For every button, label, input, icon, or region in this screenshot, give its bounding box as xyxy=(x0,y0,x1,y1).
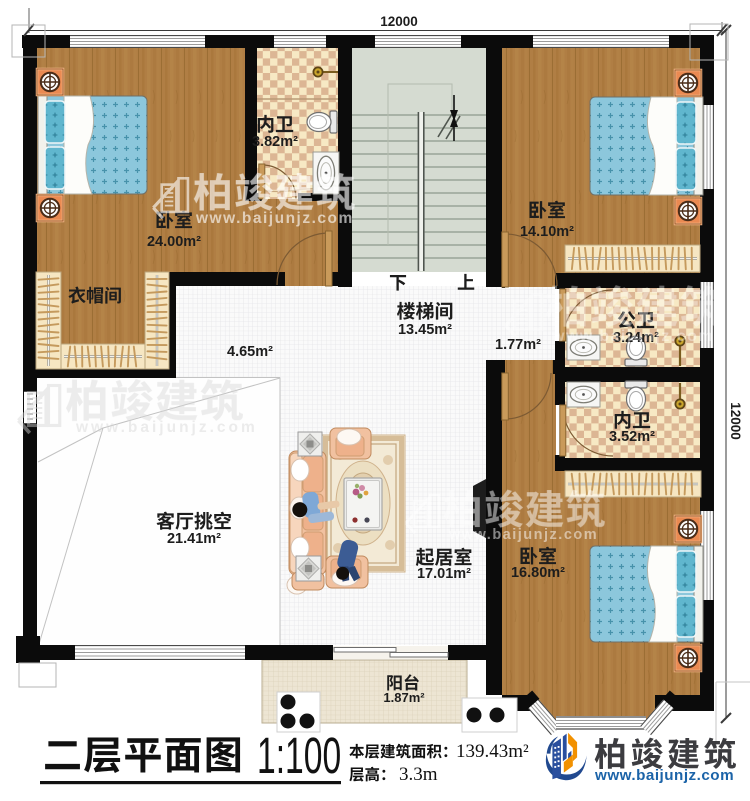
svg-text:17.01m²: 17.01m² xyxy=(417,566,471,582)
svg-text:21.41m²: 21.41m² xyxy=(167,531,221,547)
svg-text:1.77m²: 1.77m² xyxy=(495,337,541,353)
svg-text:1:100: 1:100 xyxy=(257,728,341,785)
svg-text:www.baijunjz.com: www.baijunjz.com xyxy=(195,210,354,227)
svg-text:www.baijunjz.com: www.baijunjz.com xyxy=(551,328,714,345)
svg-text:www.baijunjz.com: www.baijunjz.com xyxy=(448,527,598,543)
svg-text:www.baijunjz.com: www.baijunjz.com xyxy=(594,767,734,784)
svg-text:3.82m²: 3.82m² xyxy=(252,134,298,150)
svg-text:16.80m²: 16.80m² xyxy=(511,565,565,581)
svg-text:14.10m²: 14.10m² xyxy=(520,224,574,240)
svg-text:139.43m²: 139.43m² xyxy=(456,741,529,762)
svg-text:24.00m²: 24.00m² xyxy=(147,234,201,250)
svg-text:13.45m²: 13.45m² xyxy=(398,322,452,338)
svg-text:3.3m: 3.3m xyxy=(399,764,438,785)
svg-text:1.87m²: 1.87m² xyxy=(383,690,425,705)
svg-text:4.65m²: 4.65m² xyxy=(227,344,273,360)
svg-text:12000: 12000 xyxy=(728,402,743,440)
svg-text:12000: 12000 xyxy=(380,14,418,29)
svg-text:3.52m²: 3.52m² xyxy=(609,429,655,445)
svg-text:www.baijunjz.com: www.baijunjz.com xyxy=(75,419,258,436)
